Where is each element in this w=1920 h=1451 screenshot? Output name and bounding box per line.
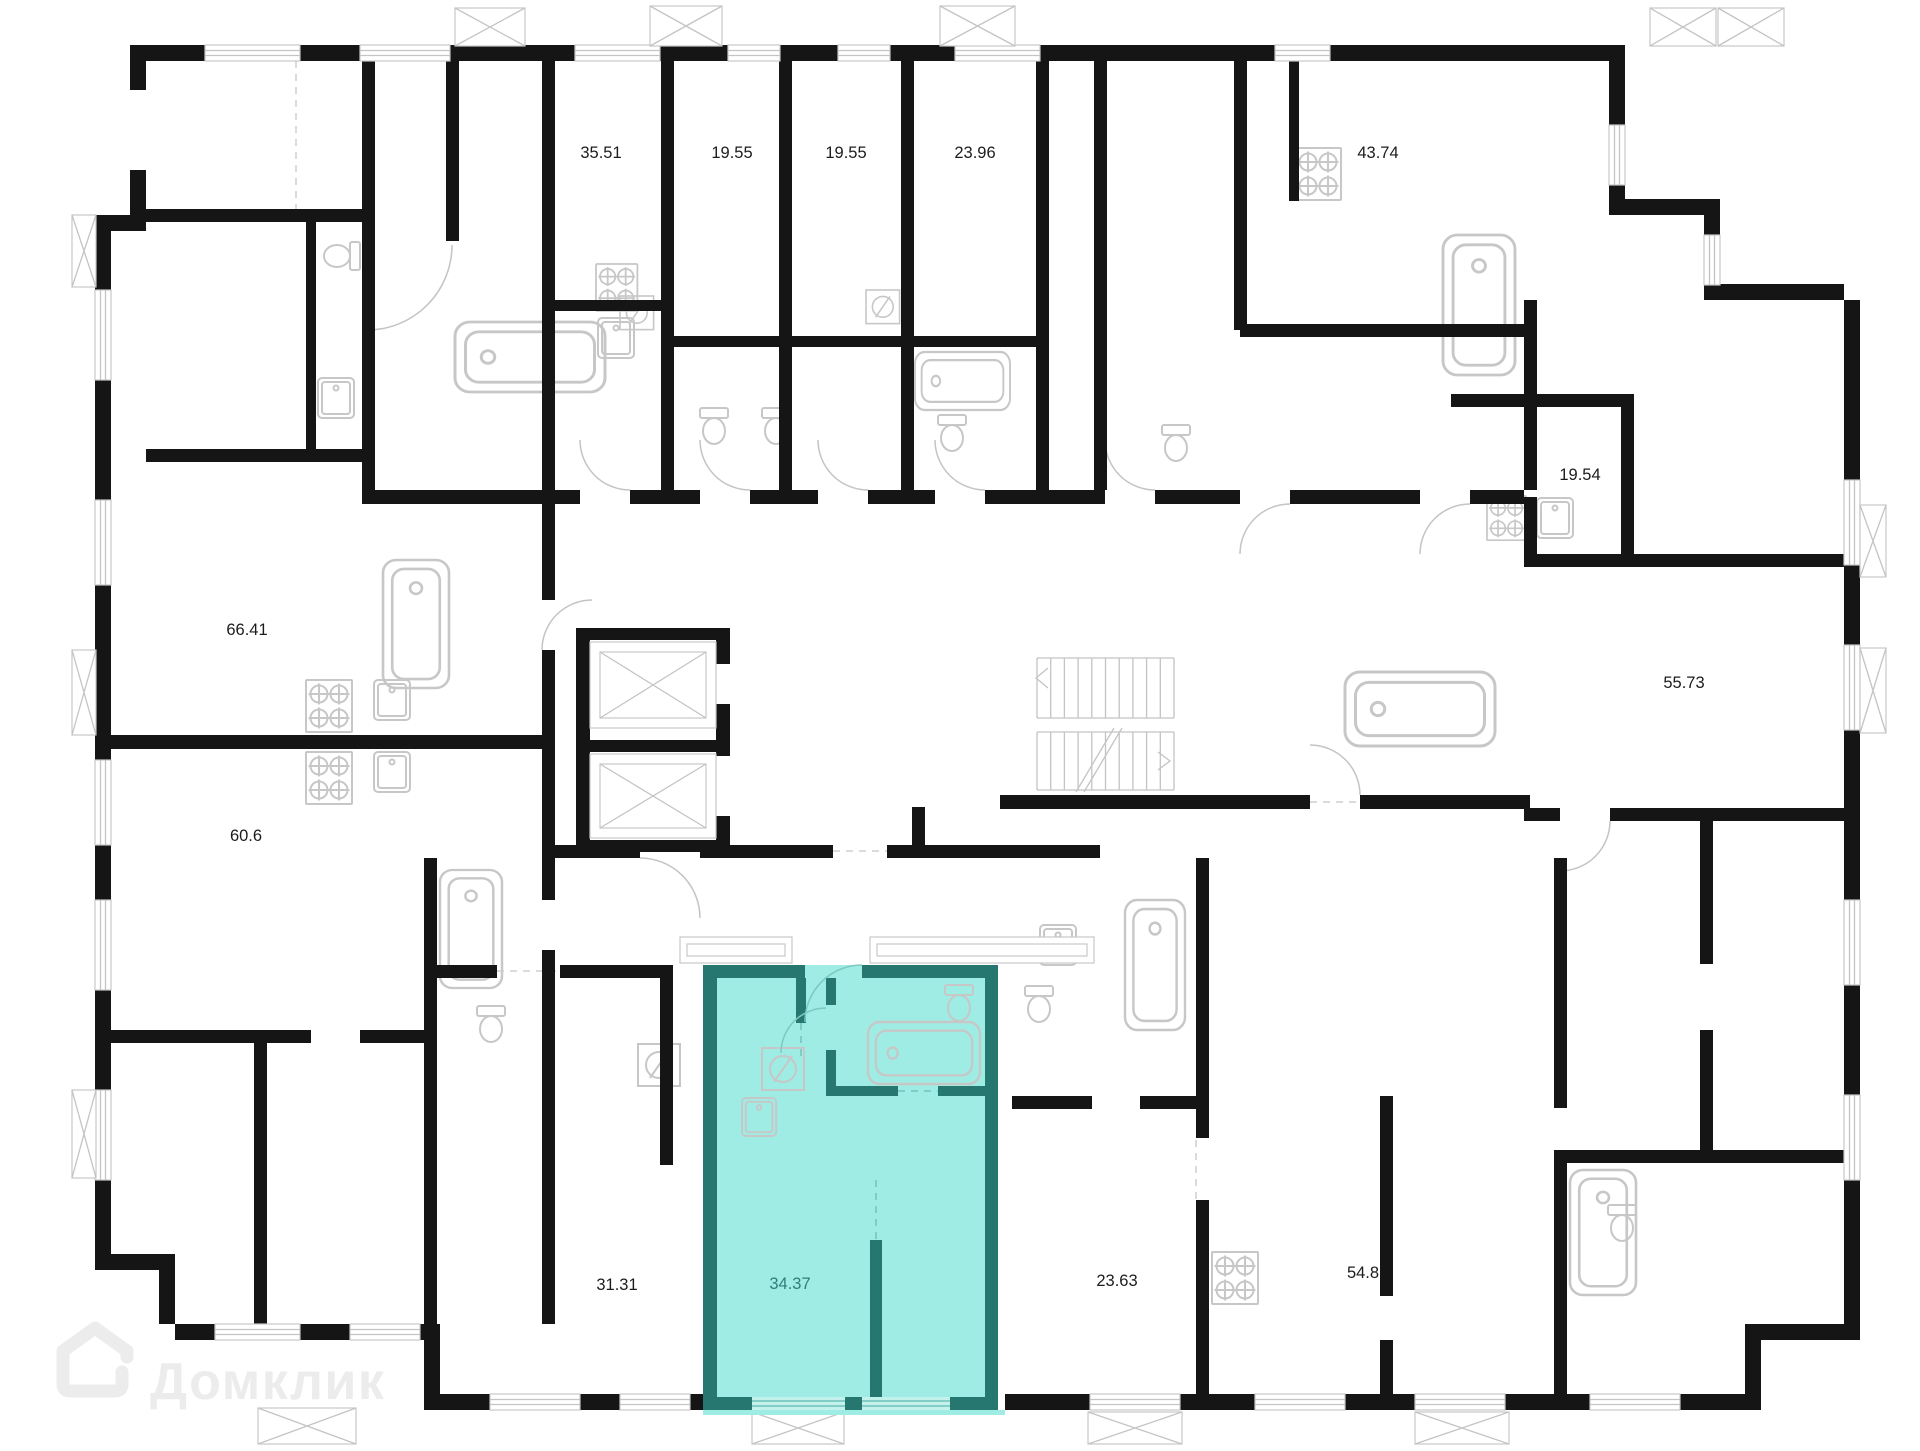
area-label-23-96[interactable]: 23.96	[954, 144, 995, 162]
stove-icon	[1212, 1252, 1258, 1304]
balcony-icon	[1718, 8, 1784, 46]
elevator-shafts	[576, 628, 730, 852]
window-icon	[1275, 45, 1330, 61]
window-icon	[490, 1394, 580, 1410]
window-icon	[1704, 235, 1720, 285]
electric-panel-icon	[866, 290, 900, 324]
balcony-icon	[258, 1408, 356, 1444]
window-icon	[95, 500, 111, 585]
sink-icon	[318, 378, 354, 418]
area-label-43-74[interactable]: 43.74	[1357, 144, 1398, 162]
bathtub-icon	[1443, 235, 1515, 375]
bathtub-icon	[1570, 1170, 1636, 1295]
stove-icon	[306, 680, 352, 732]
toilet-icon	[1162, 425, 1190, 461]
area-label-19-54[interactable]: 19.54	[1559, 466, 1600, 484]
bathtub-icon	[1345, 672, 1495, 746]
sink-icon	[1537, 498, 1573, 538]
balcony-icon	[72, 650, 96, 735]
window-icon	[95, 900, 111, 990]
highlighted-apartment[interactable]	[703, 965, 1005, 1415]
elevator-shaft-icon	[590, 642, 716, 728]
floor-plan-svg: Домклик	[0, 0, 1920, 1451]
area-label-55-73[interactable]: 55.73	[1663, 674, 1704, 692]
bathtub-icon	[1125, 900, 1185, 1030]
window-icon	[1255, 1394, 1345, 1410]
window-icon	[1090, 1394, 1180, 1410]
bathtub-icon	[455, 322, 605, 392]
domclick-logo-icon	[63, 1328, 127, 1391]
toilet-icon	[938, 415, 966, 451]
balcony-icon	[1650, 8, 1716, 46]
window-icon	[1609, 125, 1625, 185]
balcony-icon	[1860, 648, 1886, 733]
bathtub-icon	[915, 352, 1010, 410]
balcony-icon	[940, 6, 1015, 46]
window-icon	[350, 1324, 420, 1340]
bathtub-icon	[383, 560, 449, 688]
window-icon	[1590, 1394, 1680, 1410]
staircase	[1036, 658, 1174, 792]
toilet-icon	[1025, 986, 1053, 1022]
balcony-icon	[72, 1090, 96, 1178]
sink-icon	[598, 318, 634, 358]
window-icon	[838, 45, 890, 61]
window-icon	[1415, 1394, 1505, 1410]
window-icon	[1844, 900, 1860, 985]
area-label-60-6[interactable]: 60.6	[230, 827, 262, 845]
balcony-icon	[1415, 1412, 1509, 1444]
area-label-35-51[interactable]: 35.51	[580, 144, 621, 162]
balcony-icon	[752, 1412, 844, 1444]
balcony-icon	[455, 8, 525, 46]
toilet-icon	[1608, 1205, 1636, 1241]
watermark-text: Домклик	[150, 1353, 385, 1411]
area-label-23-63[interactable]: 23.63	[1096, 1272, 1137, 1290]
window-icon	[575, 45, 660, 61]
floor-plan-image: Домклик	[0, 0, 1920, 1451]
window-icon	[955, 45, 1040, 61]
area-label-54-8[interactable]: 54.8	[1347, 1264, 1379, 1282]
window-icon	[95, 760, 111, 845]
window-icon	[1844, 480, 1860, 565]
sink-icon	[374, 680, 410, 720]
balcony-icon	[1860, 505, 1886, 577]
window-icon	[1844, 645, 1860, 730]
area-label-34-37-highlighted[interactable]: 34.37	[769, 1275, 810, 1293]
toilet-icon	[324, 242, 360, 270]
window-icon	[215, 1324, 300, 1340]
window-icon	[360, 45, 450, 61]
toilet-icon	[700, 408, 728, 444]
balcony-icon	[72, 215, 96, 287]
area-label-19-55-b[interactable]: 19.55	[825, 144, 866, 162]
window-icon	[1844, 1095, 1860, 1180]
sink-icon	[374, 752, 410, 792]
area-label-31-31[interactable]: 31.31	[596, 1276, 637, 1294]
elevator-shaft-icon	[590, 754, 716, 838]
electric-panel-icon	[638, 1044, 680, 1086]
window-icon	[205, 45, 300, 61]
toilet-icon	[477, 1006, 505, 1042]
stove-icon	[306, 752, 352, 804]
balcony-icon	[650, 6, 722, 46]
balcony-icon	[1088, 1412, 1182, 1444]
window-icon	[95, 290, 111, 380]
stove-icon	[1295, 148, 1341, 200]
area-label-66-41[interactable]: 66.41	[226, 621, 267, 639]
window-icon	[95, 1090, 111, 1180]
window-icon	[620, 1394, 690, 1410]
area-label-19-55-a[interactable]: 19.55	[711, 144, 752, 162]
window-icon	[728, 45, 780, 61]
